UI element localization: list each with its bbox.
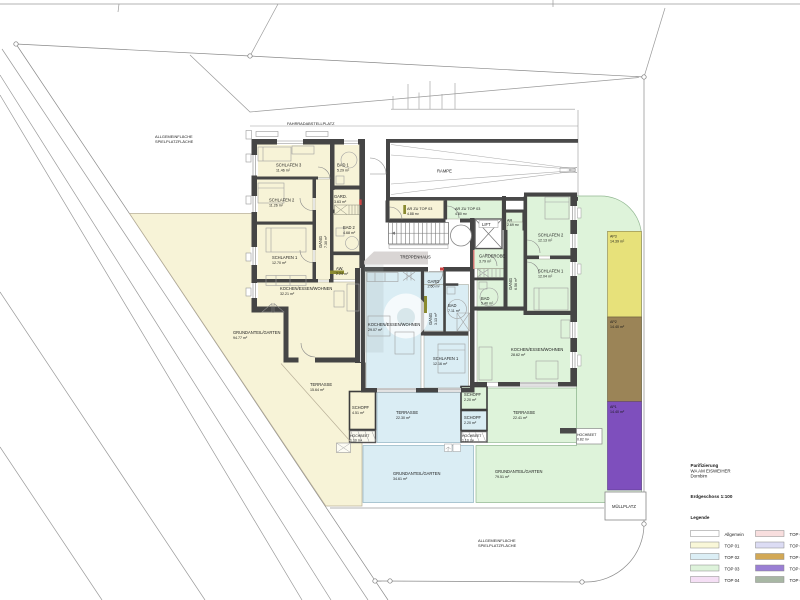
svg-text:GRUNDANTEIL/GARTEN: GRUNDANTEIL/GARTEN xyxy=(495,469,543,474)
svg-text:28.62 m²: 28.62 m² xyxy=(511,353,526,357)
svg-text:GANG: GANG xyxy=(428,313,433,325)
svg-text:5.29 m²: 5.29 m² xyxy=(337,169,350,173)
svg-text:TERRASSE: TERRASSE xyxy=(513,410,535,415)
svg-text:11.26 m²: 11.26 m² xyxy=(269,204,284,208)
svg-text:TOP 04: TOP 04 xyxy=(725,578,741,583)
svg-text:TOP 05: TOP 05 xyxy=(790,532,800,537)
svg-text:KOCHEN/ESSEN/WOHNEN: KOCHEN/ESSEN/WOHNEN xyxy=(280,286,332,291)
svg-text:BAD: BAD xyxy=(481,296,489,301)
svg-text:SPIELPLATZFLÄCHE: SPIELPLATZFLÄCHE xyxy=(155,139,194,144)
svg-text:5.40 m²: 5.40 m² xyxy=(481,302,494,306)
svg-text:AR ZU TOP 03: AR ZU TOP 03 xyxy=(407,207,432,211)
svg-text:AP1: AP1 xyxy=(610,405,617,409)
svg-text:4.88 m²: 4.88 m² xyxy=(407,212,420,216)
svg-text:2.69 m²: 2.69 m² xyxy=(507,223,520,227)
svg-text:Legende: Legende xyxy=(691,515,710,520)
svg-text:Erdgeschoss 1:100: Erdgeschoss 1:100 xyxy=(691,494,733,499)
svg-text:TOP 02: TOP 02 xyxy=(725,555,741,560)
svg-text:2.60 m²: 2.60 m² xyxy=(428,285,441,289)
svg-text:22.30 m²: 22.30 m² xyxy=(396,416,411,420)
svg-text:12.16 m²: 12.16 m² xyxy=(433,362,448,366)
svg-text:MÜLLPLATZ: MÜLLPLATZ xyxy=(612,504,636,509)
svg-text:BAD 2: BAD 2 xyxy=(343,225,356,230)
svg-text:12.04 m²: 12.04 m² xyxy=(538,275,553,279)
svg-text:GANG: GANG xyxy=(508,278,513,290)
svg-text:SCHLAFEN 3: SCHLAFEN 3 xyxy=(276,163,302,168)
svg-text:4.80 m²: 4.80 m² xyxy=(455,212,468,216)
svg-text:14.39 m²: 14.39 m² xyxy=(610,240,625,244)
svg-text:2.24 m²: 2.24 m² xyxy=(336,272,349,276)
svg-text:LIFT: LIFT xyxy=(482,222,491,227)
svg-text:SCHLAFEN 1: SCHLAFEN 1 xyxy=(272,255,298,260)
svg-text:4.51 m²: 4.51 m² xyxy=(352,411,365,415)
svg-text:12.13 m²: 12.13 m² xyxy=(538,239,553,243)
svg-text:GARD.: GARD. xyxy=(334,194,347,199)
svg-text:Allgemein: Allgemein xyxy=(725,532,745,537)
svg-text:1.10 m²: 1.10 m² xyxy=(350,439,363,443)
svg-text:TOP 09: TOP 09 xyxy=(790,578,800,583)
svg-text:3.13 m²: 3.13 m² xyxy=(434,312,438,325)
svg-text:2.20 m²: 2.20 m² xyxy=(464,421,477,425)
svg-text:GARD: GARD xyxy=(428,279,440,284)
svg-text:11.46 m²: 11.46 m² xyxy=(276,169,291,173)
svg-text:7.30 m²: 7.30 m² xyxy=(324,235,328,248)
svg-text:AW.: AW. xyxy=(336,266,343,271)
svg-text:RAMPE: RAMPE xyxy=(437,169,452,174)
svg-text:0.82 m²: 0.82 m² xyxy=(577,438,590,442)
svg-text:GRUNDANTEIL/GARTEN: GRUNDANTEIL/GARTEN xyxy=(393,471,441,476)
svg-text:32.21 m²: 32.21 m² xyxy=(280,292,295,296)
svg-text:TOP 01: TOP 01 xyxy=(725,544,741,549)
svg-text:KOCHEN/ESSEN/WOHNEN: KOCHEN/ESSEN/WOHNEN xyxy=(511,347,563,352)
svg-text:94.77 m²: 94.77 m² xyxy=(233,336,248,340)
svg-text:HOCHBEET: HOCHBEET xyxy=(350,434,370,438)
svg-text:TERRASSE: TERRASSE xyxy=(310,382,332,387)
svg-text:TOP 07: TOP 07 xyxy=(790,555,800,560)
svg-text:GANG: GANG xyxy=(318,236,323,248)
svg-text:14.40 m²: 14.40 m² xyxy=(610,410,625,414)
svg-text:22.41 m²: 22.41 m² xyxy=(513,416,528,420)
svg-text:12.70 m²: 12.70 m² xyxy=(272,261,287,265)
svg-text:HOCHBEET: HOCHBEET xyxy=(462,434,482,438)
svg-text:14.40 m²: 14.40 m² xyxy=(610,325,625,329)
svg-text:29.07 m²: 29.07 m² xyxy=(368,328,383,332)
svg-text:AP2: AP2 xyxy=(610,320,617,324)
svg-text:3.79 m²: 3.79 m² xyxy=(479,260,492,264)
svg-text:34.61 m²: 34.61 m² xyxy=(393,477,408,481)
svg-text:TOP 08: TOP 08 xyxy=(790,567,800,572)
svg-text:7.11 m²: 7.11 m² xyxy=(448,309,461,313)
svg-text:TOP 03: TOP 03 xyxy=(725,567,741,572)
svg-text:GRUNDANTEIL/GARTEN: GRUNDANTEIL/GARTEN xyxy=(233,330,281,335)
svg-text:SCHLAFEN 2: SCHLAFEN 2 xyxy=(538,233,564,238)
svg-text:79.51 m²: 79.51 m² xyxy=(495,475,510,479)
svg-text:SCHLAFEN 1: SCHLAFEN 1 xyxy=(433,356,459,361)
svg-text:AP3: AP3 xyxy=(610,235,617,239)
svg-text:HOCHBEET: HOCHBEET xyxy=(577,433,597,437)
svg-text:TOP 06: TOP 06 xyxy=(790,544,800,549)
svg-text:TREPPENHAUS: TREPPENHAUS xyxy=(400,255,431,260)
svg-text:3.63 m²: 3.63 m² xyxy=(334,200,347,204)
svg-text:SPIELPLATZFLÄCHE: SPIELPLATZFLÄCHE xyxy=(478,543,517,548)
svg-text:15.64 m²: 15.64 m² xyxy=(310,388,325,392)
svg-text:Parifizierung: Parifizierung xyxy=(691,463,719,468)
svg-text:AR ZU TOP 03: AR ZU TOP 03 xyxy=(455,207,480,211)
svg-text:SCHOPF: SCHOPF xyxy=(464,392,482,397)
svg-text:Dornbirn: Dornbirn xyxy=(691,474,708,479)
svg-text:SCHOPF: SCHOPF xyxy=(464,415,482,420)
svg-text:SCHLAFEN 2: SCHLAFEN 2 xyxy=(269,198,295,203)
svg-text:KOCHEN/ESSEN/WOHNEN: KOCHEN/ESSEN/WOHNEN xyxy=(368,322,420,327)
svg-text:TERRASSE: TERRASSE xyxy=(396,410,418,415)
svg-text:1.10 m²: 1.10 m² xyxy=(462,439,475,443)
svg-text:AR: AR xyxy=(507,219,512,223)
svg-text:BAD: BAD xyxy=(448,303,456,308)
svg-text:4.68 m²: 4.68 m² xyxy=(343,231,356,235)
svg-text:6.56 m²: 6.56 m² xyxy=(514,277,518,290)
svg-text:GARDEROBE: GARDEROBE xyxy=(479,254,505,259)
svg-text:BAD 1: BAD 1 xyxy=(337,163,350,168)
svg-text:FAHRRADABSTELLPLATZ: FAHRRADABSTELLPLATZ xyxy=(287,121,335,126)
svg-text:SCHLAFEN 1: SCHLAFEN 1 xyxy=(538,269,564,274)
svg-text:SCHOPF: SCHOPF xyxy=(352,405,370,410)
svg-text:2.20 m²: 2.20 m² xyxy=(464,398,477,402)
